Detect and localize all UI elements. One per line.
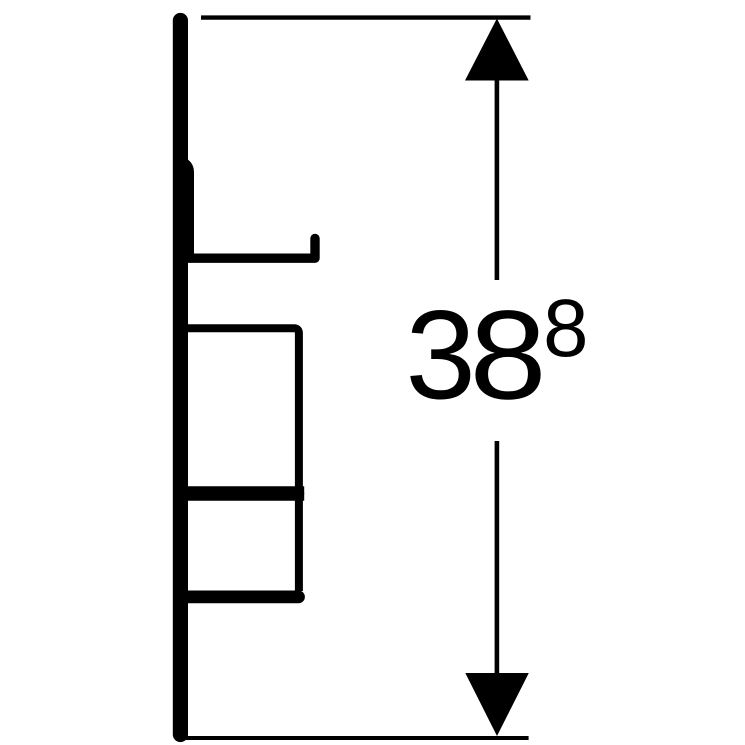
svg-text:8: 8 [469, 284, 546, 426]
svg-text:3: 3 [406, 284, 476, 426]
svg-text:8: 8 [543, 283, 588, 374]
